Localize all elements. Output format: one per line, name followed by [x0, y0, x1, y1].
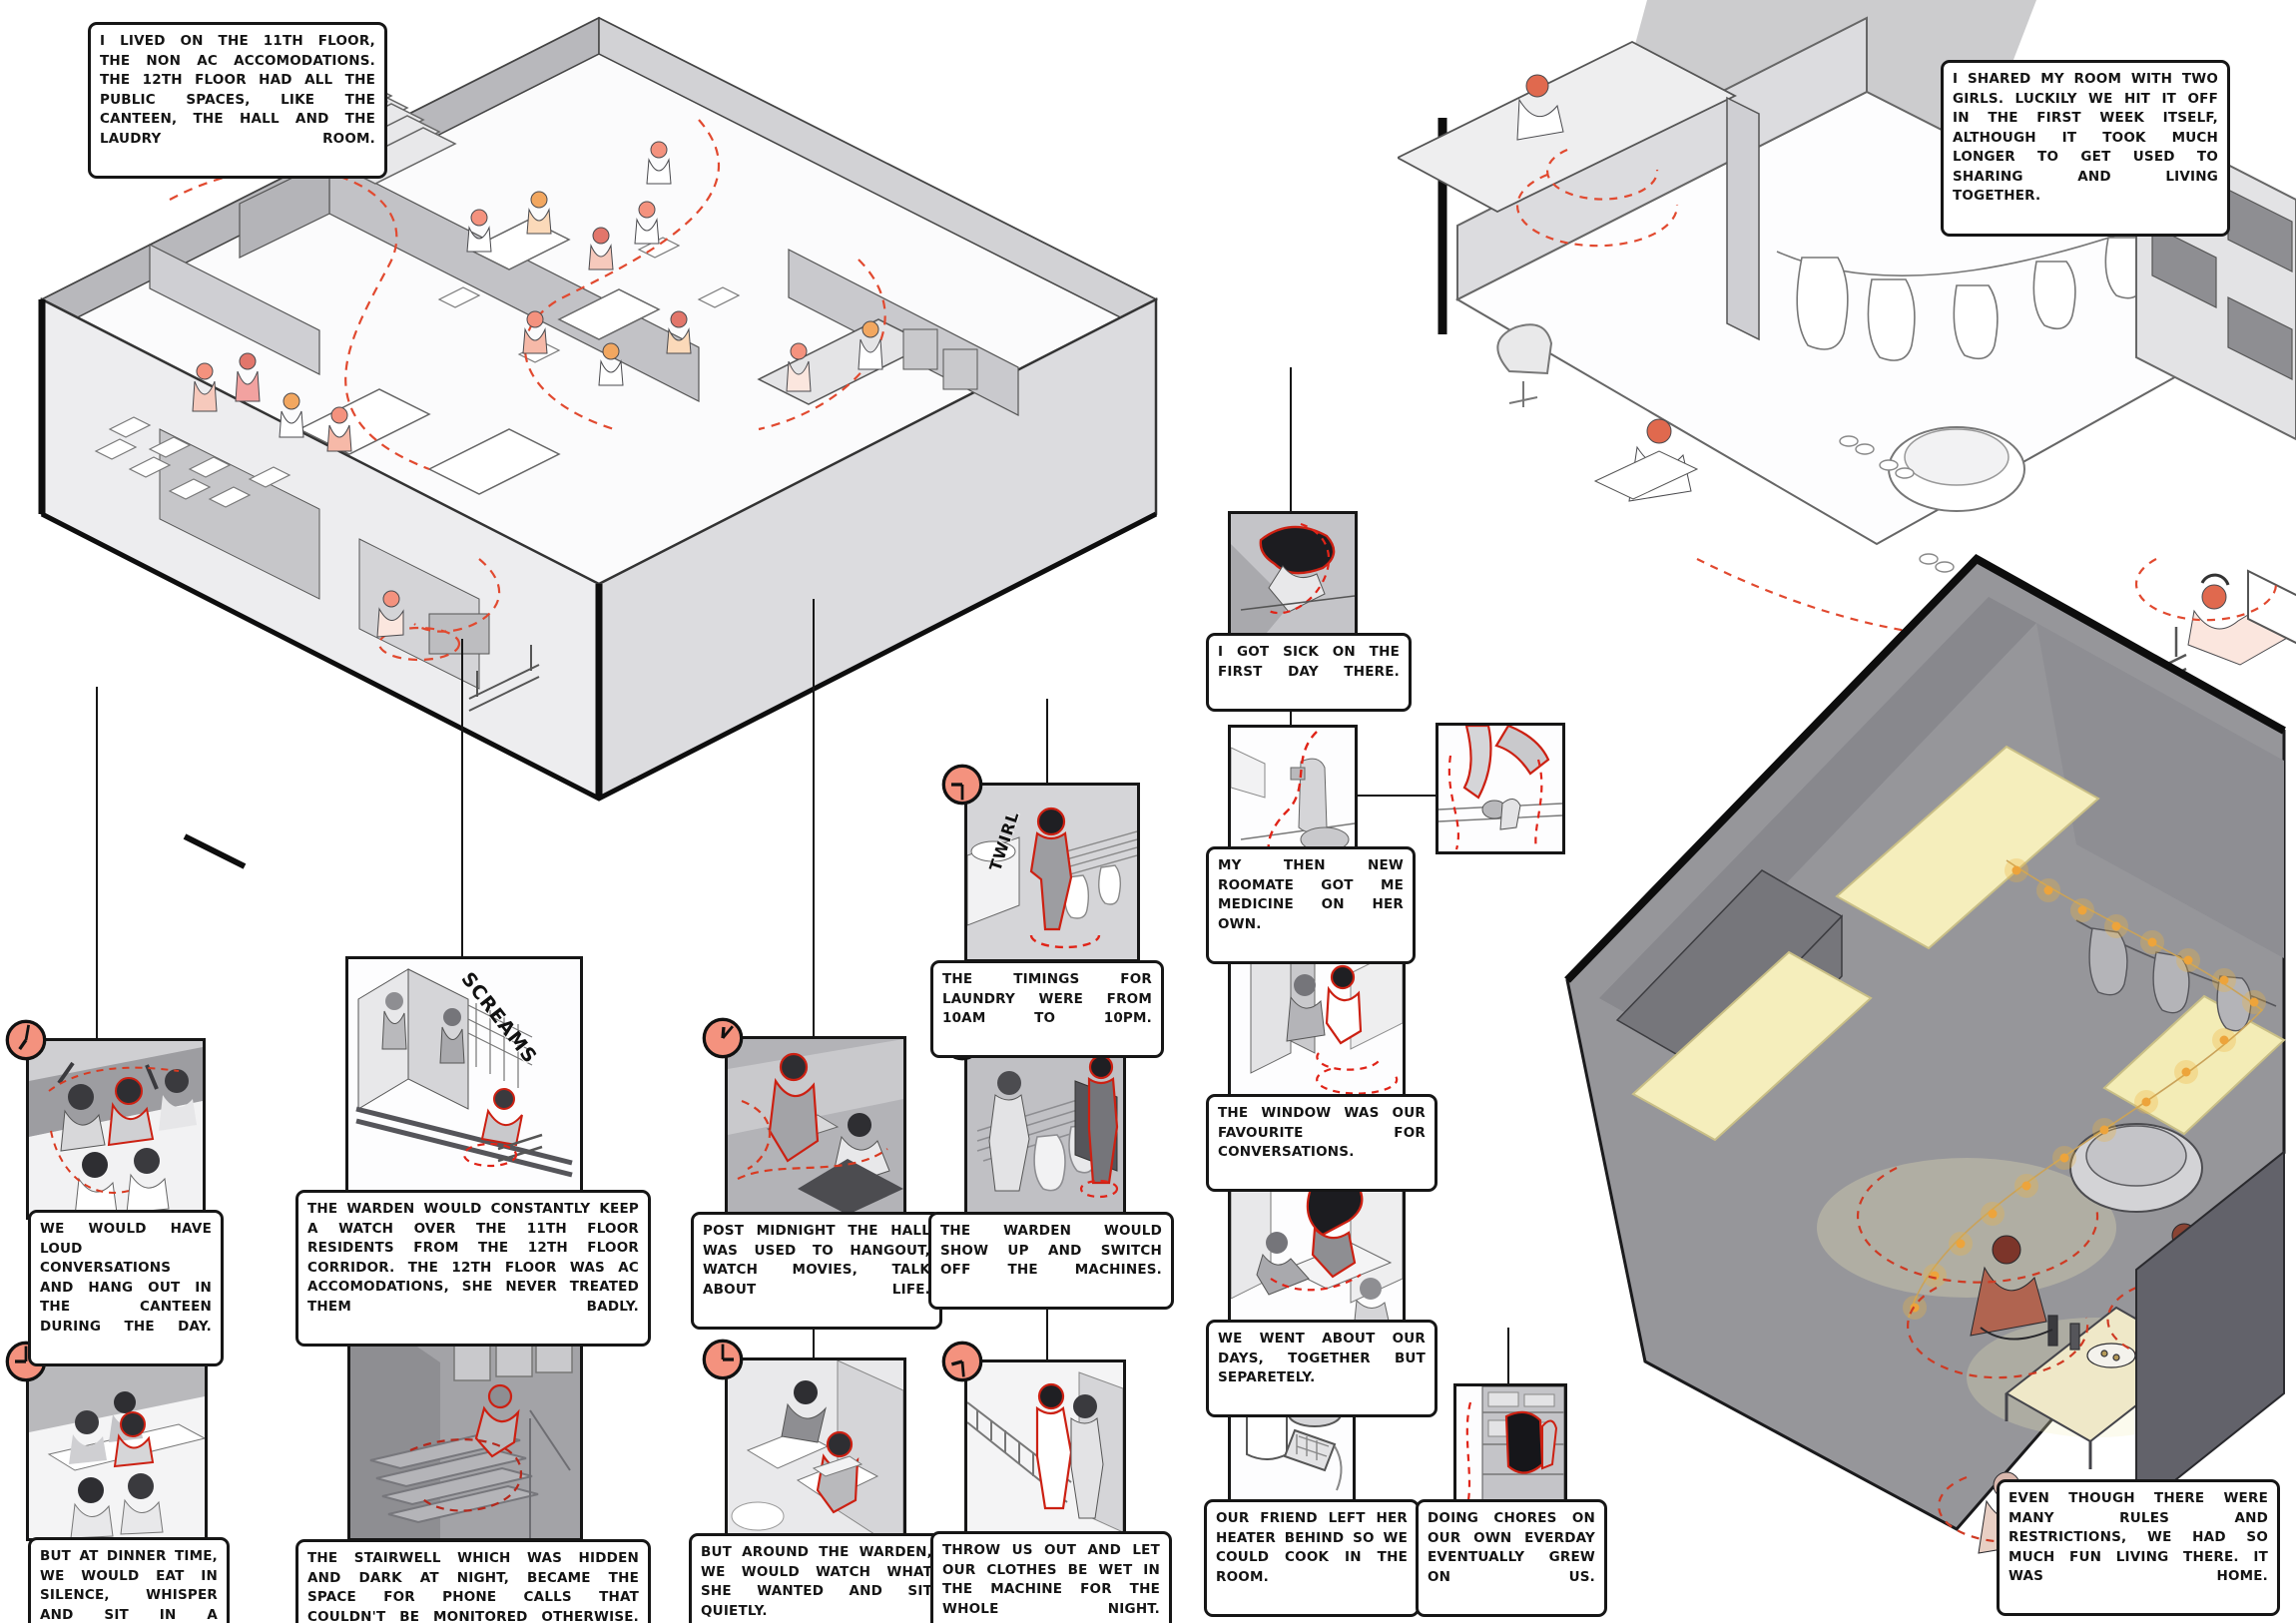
- caption-post-midnight: POST MIDNIGHT THE HALL WAS USED TO HANGO…: [691, 1212, 942, 1330]
- connector-line: [96, 687, 98, 1038]
- connector-line: [1352, 795, 1435, 797]
- caption-chores: DOING CHORES ON OUR OWN EVERDAY EVENTUAL…: [1416, 1499, 1607, 1617]
- panel-chores: [1453, 1383, 1567, 1503]
- panel-canteen-day: [26, 1038, 206, 1220]
- connector-line: [813, 599, 815, 1036]
- caption-canteen-day: WE WOULD HAVE LOUD CONVERSATIONS AND HAN…: [28, 1210, 224, 1366]
- caption-medicine: MY THEN NEW ROOMATE GOT ME MEDICINE ON H…: [1206, 846, 1416, 964]
- clock-icon: [940, 763, 984, 807]
- narration-box-intro-left: I LIVED ON THE 11TH FLOOR, THE NON AC AC…: [88, 22, 387, 179]
- panel-post-midnight: [725, 1036, 906, 1218]
- panel-medicine-hand: [1435, 723, 1565, 854]
- caption-heater: OUR FRIEND LEFT HER HEATER BEHIND SO WE …: [1204, 1499, 1420, 1617]
- caption-laundry: THE TIMINGS FOR LAUNDRY WERE FROM 10AM T…: [930, 960, 1164, 1058]
- caption-dinner: BUT AT DINNER TIME, WE WOULD EAT IN SILE…: [28, 1537, 230, 1623]
- night-room-drawing: [1537, 529, 2296, 1602]
- panel-warden-switch: [964, 1038, 1126, 1216]
- caption-throw-out: THROW US OUT AND LET OUR CLOTHES BE WET …: [930, 1531, 1172, 1623]
- panel-warden-watch: SCREAMS: [345, 956, 583, 1198]
- caption-days: WE WENT ABOUT OUR DAYS, TOGETHER BUT SEP…: [1206, 1320, 1437, 1417]
- clock-icon: [701, 1338, 745, 1381]
- clock-icon: [701, 1016, 745, 1060]
- narration-box-intro-right: I SHARED MY ROOM WITH TWO GIRLS. LUCKILY…: [1941, 60, 2230, 237]
- storyboard-page: I LIVED ON THE 11TH FLOOR, THE NON AC AC…: [0, 0, 2296, 1623]
- caption-window: THE WINDOW WAS OUR FAVOURITE FOR CONVERS…: [1206, 1094, 1437, 1192]
- caption-stairwell-night: THE STAIRWELL WHICH WAS HIDDEN AND DARK …: [295, 1539, 651, 1623]
- connector-line: [461, 639, 463, 956]
- caption-warden-watch: THE WARDEN WOULD CONSTANTLY KEEP A WATCH…: [295, 1190, 651, 1347]
- clock-icon: [940, 1340, 984, 1383]
- caption-sick: I GOT SICK ON THE FIRST DAY THERE.: [1206, 633, 1412, 712]
- connector-line: [1290, 367, 1292, 511]
- narration-box-outro: EVEN THOUGH THERE WERE MANY RULES AND RE…: [1997, 1479, 2280, 1616]
- panel-dinner: [26, 1359, 208, 1541]
- connector-line: [1507, 1328, 1509, 1383]
- caption-around-warden: BUT AROUND THE WARDEN, WE WOULD WATCH WH…: [689, 1533, 944, 1623]
- panel-medicine: [1228, 725, 1358, 856]
- caption-warden-switch: THE WARDEN WOULD SHOW UP AND SWITCH OFF …: [928, 1212, 1174, 1310]
- panel-sick: [1228, 511, 1358, 643]
- clock-icon: [4, 1018, 48, 1062]
- panel-around-warden: [725, 1357, 906, 1539]
- panel-laundry-twirl: TWIRL: [964, 783, 1140, 962]
- panel-throw-out: [964, 1359, 1126, 1535]
- connector-line: [1046, 699, 1048, 783]
